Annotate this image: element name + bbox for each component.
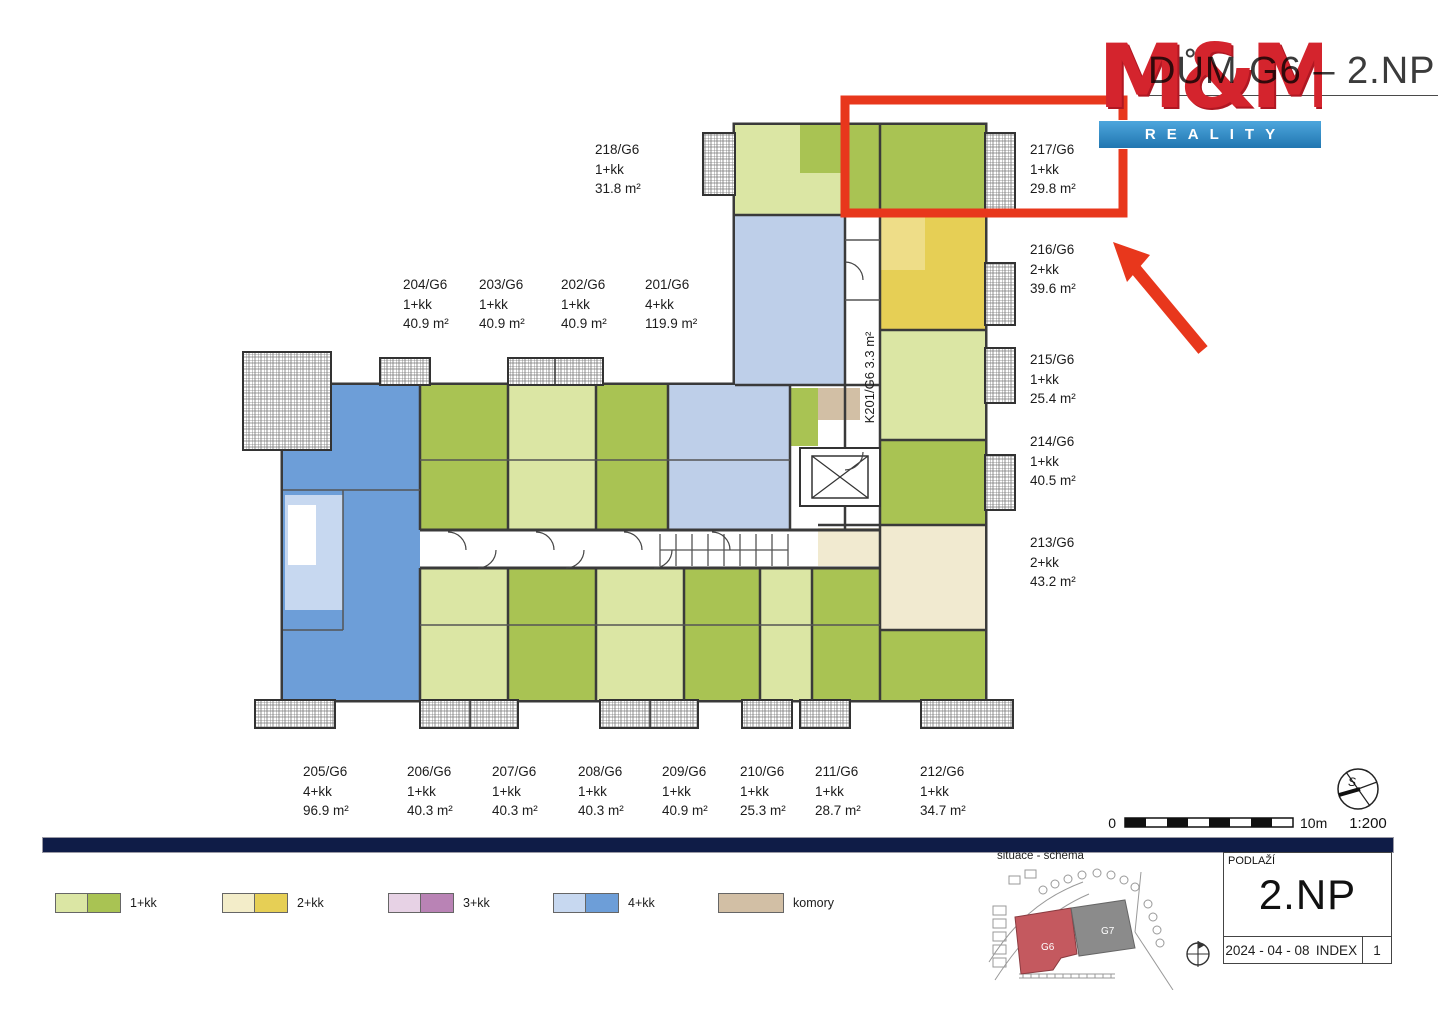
area-207 [508,568,596,700]
apartment-area: 40.3 m² [407,801,453,821]
area-210 [760,568,812,700]
apartment-label: 216/G62+kk39.6 m² [1030,240,1076,299]
legend-swatch [421,893,454,913]
apartment-area: 25.4 m² [1030,389,1076,409]
footer-divider-bar [42,837,1394,853]
apartment-area: 34.7 m² [920,801,966,821]
legend-swatch [88,893,121,913]
area-202 [596,385,668,530]
apartment-id: 212/G6 [920,762,966,782]
apartment-label: 208/G61+kk40.3 m² [578,762,624,821]
area-203 [508,385,596,530]
apartment-label: 214/G61+kk40.5 m² [1030,432,1076,491]
north-label: S [1348,775,1356,789]
title-block: PODLAŽÍ 2.NP 2024 - 04 - 08 INDEX 1 [1223,852,1392,964]
site-label-g6: G6 [1041,942,1055,953]
legend-item-2+kk: 2+kk [222,893,324,913]
area-213 [880,525,985,630]
legend-item-4+kk: 4+kk [553,893,655,913]
apartment-label: 201/G64+kk119.9 m² [645,275,697,334]
small-compass-icon [1187,941,1209,967]
apartment-id: 214/G6 [1030,432,1076,452]
apartment-label: 205/G64+kk96.9 m² [303,762,349,821]
index-label: INDEX [1311,943,1362,958]
apartment-type: 1+kk [479,295,525,315]
apartment-area: 40.9 m² [403,314,449,334]
apartment-type: 4+kk [645,295,697,315]
legend-swatch [222,893,255,913]
apartment-area: 31.8 m² [595,179,641,199]
apartment-area: 40.3 m² [492,801,538,821]
legend-item-1+kk: 1+kk [55,893,157,913]
apartment-label: 207/G61+kk40.3 m² [492,762,538,821]
apartment-area: 28.7 m² [815,801,861,821]
apartment-label: 217/G61+kk29.8 m² [1030,140,1076,199]
apartment-id: 216/G6 [1030,240,1076,260]
apartment-type: 1+kk [578,782,624,802]
apartment-type: 1+kk [1030,370,1076,390]
legend-swatch [388,893,421,913]
legend-label: 1+kk [130,896,157,910]
area-204 [420,385,508,530]
scale-max: 10m [1300,815,1327,831]
apartment-label: 209/G61+kk40.9 m² [662,762,708,821]
title-block-label: PODLAŽÍ [1224,853,1391,869]
apartment-type: 1+kk [492,782,538,802]
apartment-id: 217/G6 [1030,140,1076,160]
apartment-area: 29.8 m² [1030,179,1076,199]
apartment-area: 43.2 m² [1030,572,1076,592]
scale-zero: 0 [1108,815,1116,831]
apartment-id: 206/G6 [407,762,453,782]
apartment-id: 207/G6 [492,762,538,782]
apartment-id: 202/G6 [561,275,607,295]
area-211 [812,568,880,700]
area-217 [880,125,985,215]
apartment-label: 215/G61+kk25.4 m² [1030,350,1076,409]
legend-label: komory [793,896,834,910]
site-building-g6 [1015,908,1077,974]
apartment-type: 1+kk [407,782,453,802]
apartment-area: 25.3 m² [740,801,786,821]
apartment-label: 218/G61+kk31.8 m² [595,140,641,199]
area-209 [684,568,760,700]
apartment-id: 208/G6 [578,762,624,782]
apartment-label: 213/G62+kk43.2 m² [1030,533,1076,592]
apartment-label: 210/G61+kk25.3 m² [740,762,786,821]
site-label-g7: G7 [1101,926,1115,937]
apartment-type: 1+kk [1030,452,1076,472]
area-201 [668,385,790,530]
apartment-type: 1+kk [595,160,641,180]
apartment-id: 213/G6 [1030,533,1076,553]
site-map-caption: situace - schéma [997,850,1084,862]
apartment-type: 1+kk [662,782,708,802]
apartment-label: 206/G61+kk40.3 m² [407,762,453,821]
legend-item-komory: komory [718,893,834,913]
plan-date: 2024 - 04 - 08 [1224,943,1311,958]
apartment-label: 211/G61+kk28.7 m² [815,762,861,821]
area-212 [880,630,985,700]
apartment-area: 40.9 m² [479,314,525,334]
scale-bar: 0 10m 1:200 [1108,815,1387,832]
area-komora [818,388,860,420]
apartment-type: 1+kk [815,782,861,802]
page-title: DŮM G6 – 2.NP [1148,50,1440,93]
legend-swatch [718,893,784,913]
legend-label: 2+kk [297,896,324,910]
page: { "header": { "title": "DŮM G6 – 2.NP", … [0,0,1440,1014]
apartment-area: 40.5 m² [1030,471,1076,491]
apartment-id: 204/G6 [403,275,449,295]
area-206 [420,568,508,700]
legend-item-3+kk: 3+kk [388,893,490,913]
apartment-type: 2+kk [1030,260,1076,280]
apartment-id: 201/G6 [645,275,697,295]
apartment-label: 203/G61+kk40.9 m² [479,275,525,334]
apartment-id: 209/G6 [662,762,708,782]
apartment-type: 2+kk [1030,553,1076,573]
apartment-type: 1+kk [740,782,786,802]
apartment-label: 204/G61+kk40.9 m² [403,275,449,334]
apartment-area: 40.9 m² [662,801,708,821]
corridor-cell-label: K201/G6 3.3 m² [862,295,877,460]
apartment-area: 96.9 m² [303,801,349,821]
apartment-area: 40.9 m² [561,314,607,334]
index-value: 1 [1363,943,1391,958]
apartment-area: 39.6 m² [1030,279,1076,299]
apartment-type: 1+kk [1030,160,1076,180]
logo-reality-bar: REALITY [1098,120,1322,149]
north-compass-icon: S [1338,769,1378,809]
apartment-id: 205/G6 [303,762,349,782]
apartment-type: 1+kk [403,295,449,315]
legend-swatch [553,893,586,913]
highlight-arrow-shaft [1133,266,1203,350]
apartment-id: 215/G6 [1030,350,1076,370]
legend-swatch [255,893,288,913]
scale-ratio: 1:200 [1349,815,1387,832]
apartment-label: 212/G61+kk34.7 m² [920,762,966,821]
apartment-id: 203/G6 [479,275,525,295]
legend-label: 3+kk [463,896,490,910]
site-map: G6 G7 [985,862,1180,990]
area-208 [596,568,684,700]
legend-swatch [55,893,88,913]
apartment-label: 202/G61+kk40.9 m² [561,275,607,334]
legend-swatch [586,893,619,913]
area-201-wing [735,215,845,385]
apartment-area: 40.3 m² [578,801,624,821]
area-215 [880,330,985,440]
apartment-id: 218/G6 [595,140,641,160]
apartment-type: 1+kk [561,295,607,315]
title-block-bottom-row: 2024 - 04 - 08 INDEX 1 [1224,936,1391,963]
apartment-type: 4+kk [303,782,349,802]
apartment-type: 1+kk [920,782,966,802]
apartment-area: 119.9 m² [645,314,697,334]
apartment-id: 210/G6 [740,762,786,782]
floor-number: 2.NP [1224,871,1391,919]
apartment-id: 211/G6 [815,762,861,782]
area-214 [880,440,985,525]
legend-label: 4+kk [628,896,655,910]
